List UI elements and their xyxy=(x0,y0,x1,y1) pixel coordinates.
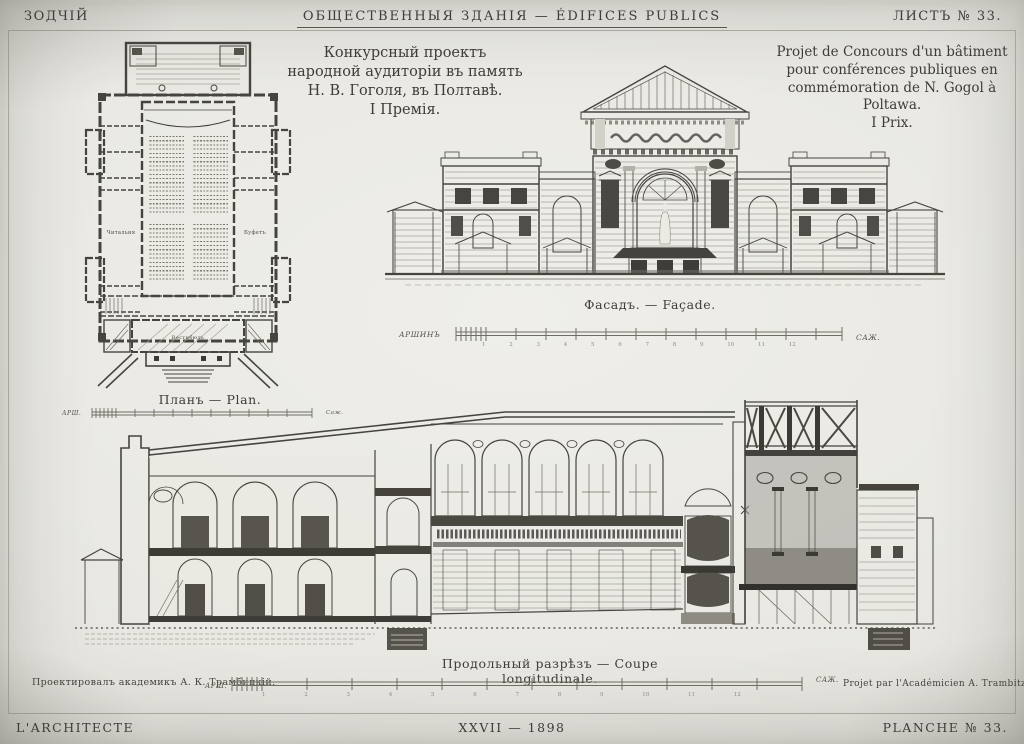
facade-frieze-lettering xyxy=(611,135,721,142)
footer-volume-year: XXVII — 1898 xyxy=(0,720,1024,735)
section-scale-numbers: 1 2 3 4 5 6 7 8 9 10 11 12 xyxy=(228,692,842,698)
section-svg xyxy=(75,398,935,653)
plan-stage-front xyxy=(144,110,232,127)
section-stage-tower xyxy=(739,400,857,624)
plan-seating-rows xyxy=(192,224,228,280)
plan-stage-house xyxy=(126,43,250,95)
facade-scale-bar: 1 2 3 4 5 6 7 8 9 10 11 12 xyxy=(452,326,878,348)
plan-label-vestibule: Вестибюль xyxy=(172,334,204,341)
plate-rubric: ОБЩЕСТВЕННЫЯ ЗДАНІЯ — ÉDIFICES PUBLICS xyxy=(0,9,1024,24)
plate-page: ЗОДЧІЙ ОБЩЕСТВЕННЫЯ ЗДАНІЯ — ÉDIFICES PU… xyxy=(0,0,1024,744)
facade-right-half xyxy=(735,152,943,274)
facade-svg xyxy=(385,52,945,292)
section-left-porch xyxy=(81,549,123,624)
facade-scale-left-label: АРШИНЪ xyxy=(399,330,440,339)
footer-planche: PLANCHE № 33. xyxy=(883,720,1008,735)
plan-seating-rows xyxy=(192,136,228,214)
floor-plan-drawing: Читальня Буфетъ Вестибюль xyxy=(68,40,308,392)
facade-statue xyxy=(662,204,668,211)
plan-label-buffet: Буфетъ xyxy=(244,229,266,236)
section-stair-bay xyxy=(375,444,431,650)
facade-drawing xyxy=(385,52,945,292)
section-scale-bar: 1 2 3 4 5 6 7 8 9 10 11 12 xyxy=(228,676,842,698)
section-ground-line xyxy=(75,628,935,644)
floor-plan-svg: Читальня Буфетъ Вестибюль xyxy=(68,40,308,392)
section-drawing xyxy=(75,398,935,653)
plan-seating-rows xyxy=(148,136,184,214)
facade-scale-right-label: САЖ. xyxy=(856,333,880,342)
sheet-number: ЛИСТЪ № 33. xyxy=(893,9,1002,24)
plan-main-walls xyxy=(86,93,290,341)
facade-left-half xyxy=(387,152,595,274)
facade-caption: Фасадъ. — Façade. xyxy=(555,297,745,312)
credit-french: Projet par l'Académicien A. Trambitzky. xyxy=(843,679,1024,689)
facade-ground-line xyxy=(385,270,945,285)
facade-scale-numbers: 1 2 3 4 5 6 7 8 9 10 11 12 xyxy=(452,342,878,348)
section-boxes xyxy=(681,422,749,624)
section-scale-left-label: АРШ. xyxy=(205,682,227,690)
plan-entrance-porch xyxy=(98,352,278,388)
plan-seating-rows xyxy=(148,224,184,280)
section-right-annex xyxy=(857,484,933,650)
plate-rubric-text: ОБЩЕСТВЕННЫЯ ЗДАНІЯ — ÉDIFICES PUBLICS xyxy=(297,9,727,28)
plan-corridor-and-stairs xyxy=(100,296,276,316)
facade-central-block xyxy=(581,66,749,274)
plan-label-reading-room: Читальня xyxy=(107,230,136,236)
section-scale-right-label: САЖ. xyxy=(816,676,839,684)
